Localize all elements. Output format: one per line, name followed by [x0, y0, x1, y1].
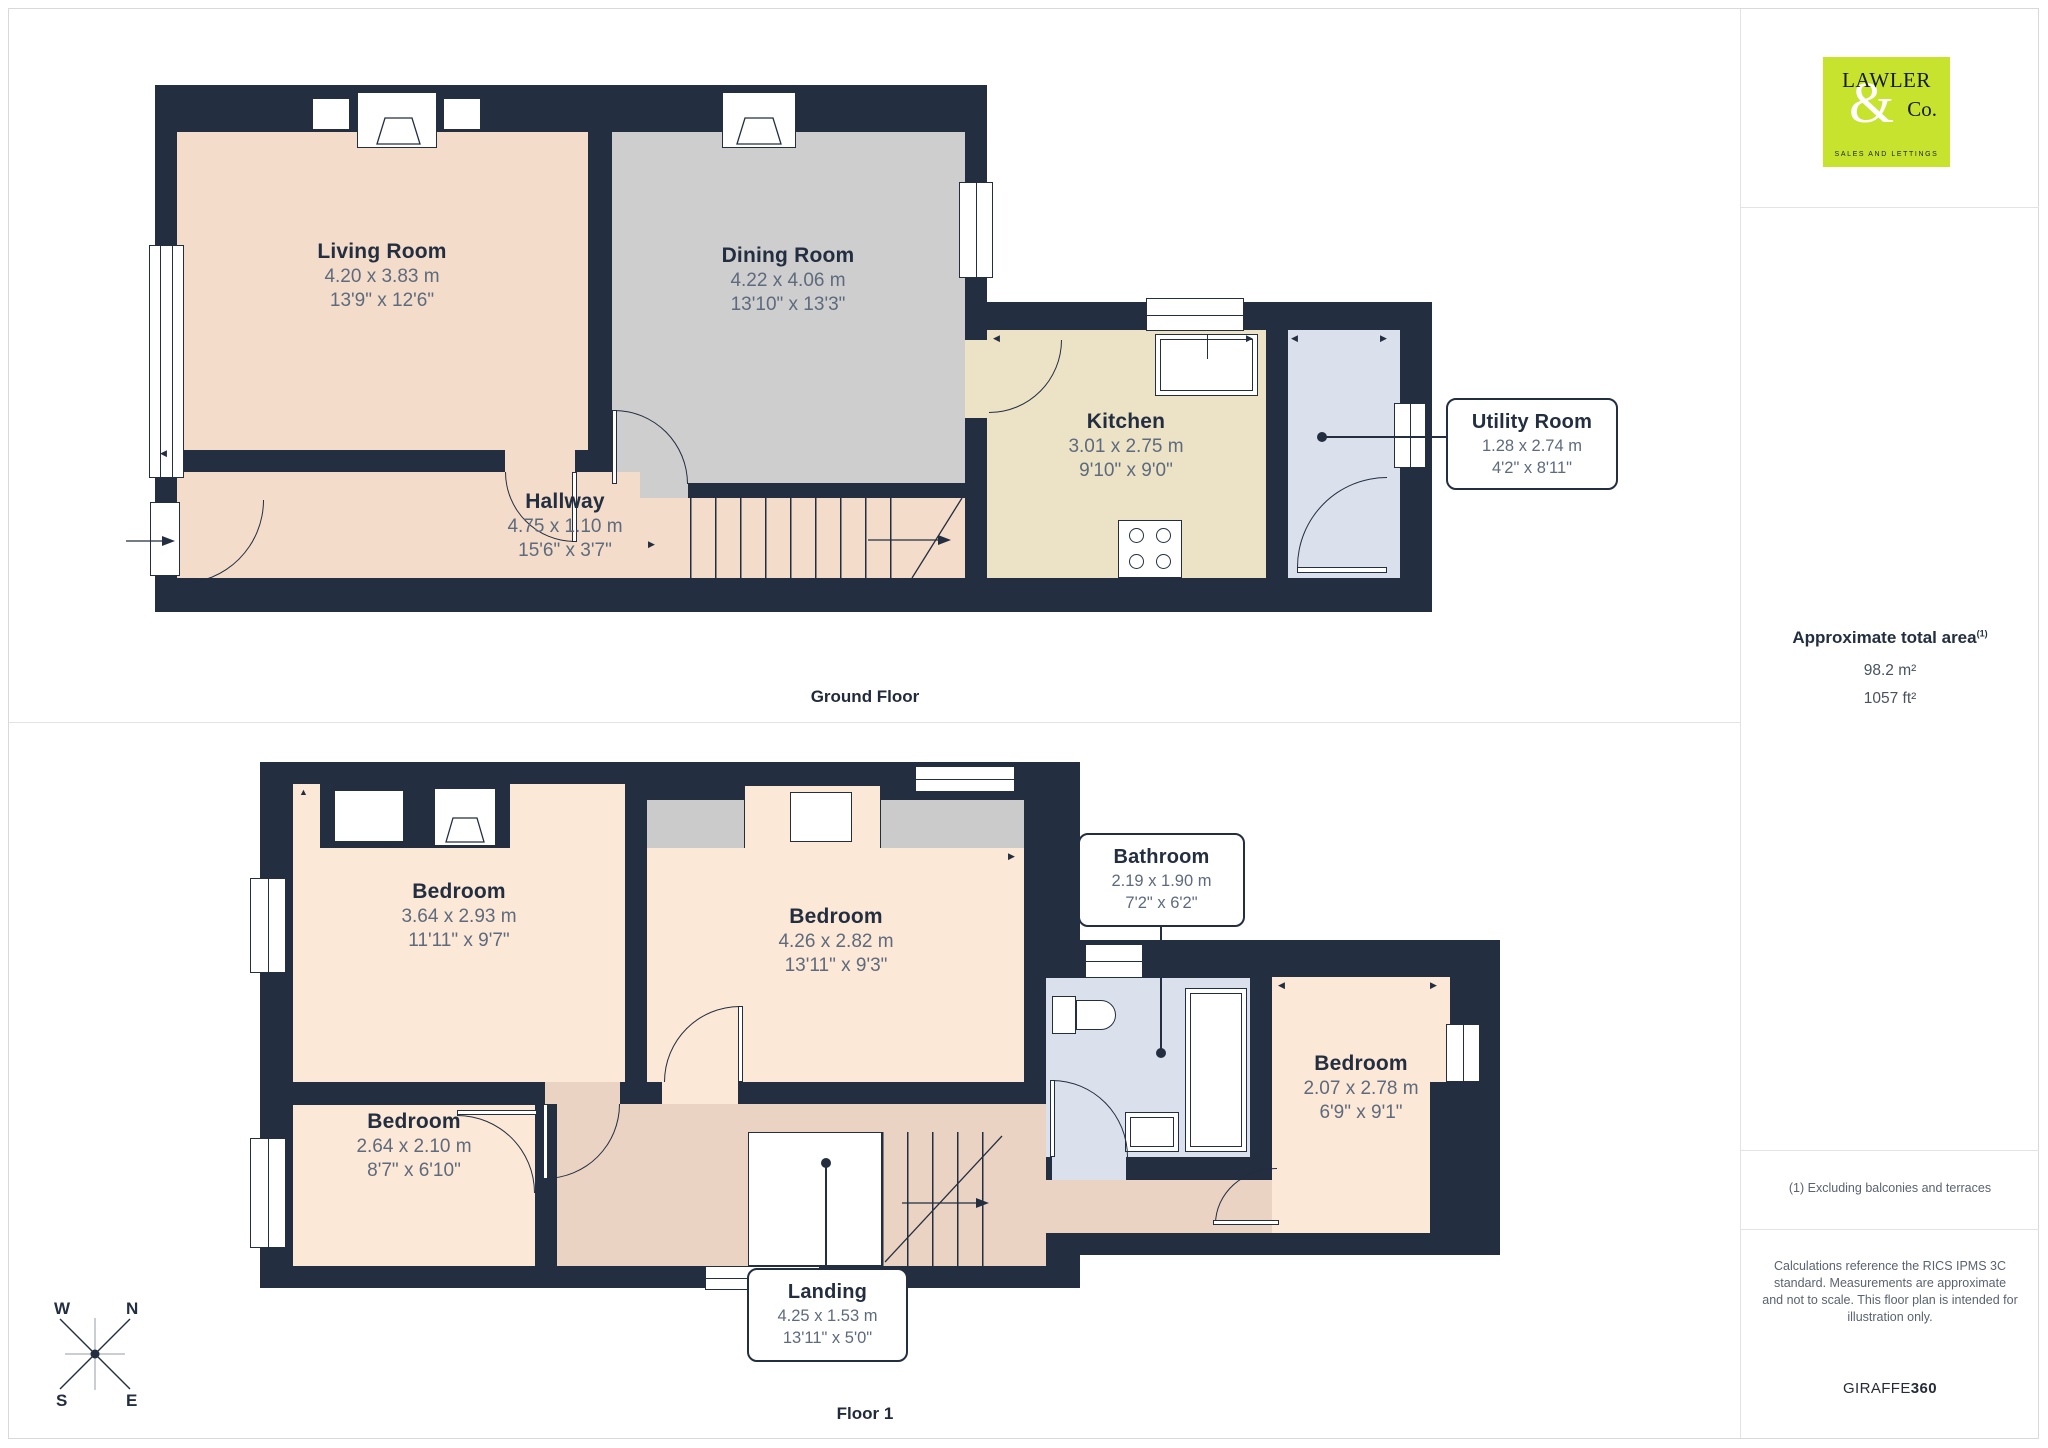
window-icon	[915, 766, 1015, 792]
room-name: Landing	[749, 1279, 906, 1306]
door-leaf	[1050, 1080, 1055, 1157]
measure-arrow-icon: ▲	[299, 788, 308, 797]
kitchen-label: Kitchen 3.01 x 2.75 m 9'10" x 9'0"	[1001, 408, 1251, 483]
leader-dot	[1317, 432, 1327, 442]
room-name: Bathroom	[1080, 844, 1243, 871]
compass-icon: W N S E	[40, 1296, 150, 1408]
bedroom-4-label: Bedroom 2.07 x 2.78 m 6'9" x 9'1"	[1236, 1050, 1486, 1125]
kitchen-sink-icon	[1155, 334, 1258, 396]
room-size-imperial: 13'11" x 9'3"	[711, 954, 961, 978]
room-name: Kitchen	[1001, 408, 1251, 435]
ground-floor-title: Ground Floor	[740, 687, 990, 707]
measure-arrow-icon: ◀	[160, 449, 167, 458]
logo-co: Co.	[1907, 97, 1937, 122]
room-size-imperial: 13'11" x 5'0"	[749, 1328, 906, 1350]
room-size-metric: 4.25 x 1.53 m	[749, 1306, 906, 1328]
floors-divider	[9, 722, 1740, 723]
room-size-metric: 2.64 x 2.10 m	[289, 1135, 539, 1159]
compass-north-label: N	[126, 1299, 138, 1318]
leader-dot	[1156, 1048, 1166, 1058]
eaves-storage-area	[880, 800, 1024, 848]
room-name: Bedroom	[711, 903, 961, 930]
landing-callout: Landing 4.25 x 1.53 m 13'11" x 5'0"	[747, 1268, 908, 1362]
door-opening	[505, 450, 575, 472]
door-leaf	[612, 410, 617, 484]
logo-tagline: SALES AND LETTINGS	[1823, 151, 1950, 158]
toilet-icon	[1052, 996, 1076, 1034]
stair-void	[748, 1132, 882, 1266]
measure-arrow-icon: ◀	[1278, 981, 1285, 990]
window-icon	[959, 182, 993, 278]
front-door-opening	[150, 502, 180, 576]
fireplace-icon	[434, 788, 496, 846]
room-name: Bedroom	[1236, 1050, 1486, 1077]
sidebar-section-divider-3	[1741, 1229, 2039, 1230]
compass-west-label: W	[54, 1299, 71, 1318]
total-area-imperial: 1057 ft²	[1745, 690, 2035, 708]
door-opening	[662, 1082, 738, 1104]
leader-line	[825, 1163, 827, 1268]
total-area-metric: 98.2 m²	[1745, 662, 2035, 680]
credit-brand: GIRAFFE	[1843, 1380, 1911, 1397]
bathroom-callout: Bathroom 2.19 x 1.90 m 7'2" x 6'2"	[1078, 833, 1245, 927]
alcove-niche	[790, 792, 852, 842]
logo-name: LAWLER	[1823, 68, 1950, 93]
room-name: Living Room	[257, 238, 507, 265]
room-size-metric: 4.20 x 3.83 m	[257, 265, 507, 289]
bedroom-3-label: Bedroom 2.64 x 2.10 m 8'7" x 6'10"	[289, 1108, 539, 1183]
alcove-niche	[443, 98, 481, 130]
window-icon	[1146, 298, 1244, 331]
measure-arrow-icon: ◀	[993, 334, 1000, 343]
window-icon	[250, 1138, 286, 1248]
total-area-title-text: Approximate total area	[1792, 628, 1976, 647]
room-name: Dining Room	[663, 242, 913, 269]
measure-arrow-icon: ▶	[1380, 334, 1387, 343]
door-opening	[965, 340, 989, 418]
living-room-label: Living Room 4.20 x 3.83 m 13'9" x 12'6"	[257, 238, 507, 313]
room-size-metric: 3.01 x 2.75 m	[1001, 435, 1251, 459]
room-size-metric: 2.07 x 2.78 m	[1236, 1077, 1486, 1101]
dining-room-label: Dining Room 4.22 x 4.06 m 13'10" x 13'3"	[663, 242, 913, 317]
leader-line	[1160, 927, 1162, 1052]
room-size-metric: 4.26 x 2.82 m	[711, 930, 961, 954]
room-size-imperial: 15'6" x 3'7"	[440, 539, 690, 563]
compass-east-label: E	[126, 1391, 137, 1408]
window-icon	[149, 245, 184, 478]
leader-line	[1322, 436, 1446, 438]
room-size-metric: 1.28 x 2.74 m	[1448, 436, 1616, 458]
door-leaf	[1297, 567, 1387, 573]
measure-arrow-icon: ▶	[1008, 852, 1015, 861]
fireplace-icon	[357, 92, 437, 148]
room-size-metric: 3.64 x 2.93 m	[334, 905, 584, 929]
measure-arrow-icon: ▶	[1246, 334, 1253, 343]
giraffe360-credit: GIRAFFE360	[1745, 1380, 2035, 1397]
room-size-imperial: 7'2" x 6'2"	[1080, 893, 1243, 915]
room-name: Bedroom	[289, 1108, 539, 1135]
compass-south-label: S	[56, 1391, 67, 1408]
door-leaf	[738, 1006, 743, 1082]
door-leaf	[543, 1104, 548, 1179]
utility-room-callout: Utility Room 1.28 x 2.74 m 4'2" x 8'11"	[1446, 398, 1618, 490]
hob-icon	[1118, 520, 1182, 578]
measure-arrow-icon: ▲	[488, 121, 497, 130]
floorplan-page: Utility Room 1.28 x 2.74 m 4'2" x 8'11" …	[0, 0, 2048, 1448]
room-size-imperial: 13'10" x 13'3"	[663, 293, 913, 317]
eaves-storage-area	[647, 800, 745, 848]
alcove-niche	[334, 790, 404, 842]
disclaimer: Calculations reference the RICS IPMS 3C …	[1762, 1258, 2018, 1326]
bathroom-sink-icon	[1125, 1112, 1179, 1152]
room-name: Hallway	[440, 488, 690, 515]
room-size-imperial: 8'7" x 6'10"	[289, 1159, 539, 1183]
total-area-note-ref: (1)	[1977, 628, 1988, 638]
measure-arrow-icon: ▶	[1430, 981, 1437, 990]
total-area-title: Approximate total area(1)	[1745, 628, 2035, 648]
alcove-niche	[312, 98, 350, 130]
measure-arrow-icon: ◀	[1291, 334, 1298, 343]
floor-1-title: Floor 1	[740, 1404, 990, 1424]
window-icon	[250, 878, 286, 973]
room-name: Utility Room	[1448, 409, 1616, 436]
bedroom-1-label: Bedroom 3.64 x 2.93 m 11'11" x 9'7"	[334, 878, 584, 953]
hallway-label: Hallway 4.75 x 1.10 m 15'6" x 3'7"	[440, 488, 690, 563]
footnote: (1) Excluding balconies and terraces	[1745, 1180, 2035, 1197]
room-size-imperial: 9'10" x 9'0"	[1001, 459, 1251, 483]
toilet-icon	[1076, 1000, 1116, 1030]
room-size-imperial: 6'9" x 9'1"	[1236, 1101, 1486, 1125]
door-opening	[545, 1082, 620, 1104]
room-size-metric: 2.19 x 1.90 m	[1080, 871, 1243, 893]
staircase	[690, 498, 912, 578]
room-size-imperial: 4'2" x 8'11"	[1448, 458, 1616, 480]
room-size-metric: 4.22 x 4.06 m	[663, 269, 913, 293]
room-size-imperial: 13'9" x 12'6"	[257, 289, 507, 313]
bedroom-2-label: Bedroom 4.26 x 2.82 m 13'11" x 9'3"	[711, 903, 961, 978]
sidebar-section-divider-2	[1741, 1150, 2039, 1151]
staircase	[882, 1132, 1006, 1266]
room-name: Bedroom	[334, 878, 584, 905]
door-leaf	[1213, 1220, 1279, 1225]
room-size-metric: 4.75 x 1.10 m	[440, 515, 690, 539]
window-icon	[1085, 944, 1143, 978]
room-size-imperial: 11'11" x 9'7"	[334, 929, 584, 953]
sidebar-section-divider-1	[1741, 207, 2039, 208]
credit-suffix: 360	[1911, 1380, 1937, 1397]
leader-dot	[821, 1158, 831, 1168]
sidebar-divider	[1740, 9, 1741, 1438]
door-opening	[1052, 1157, 1126, 1180]
agency-logo: & LAWLER Co. SALES AND LETTINGS	[1823, 57, 1950, 167]
fireplace-icon	[722, 92, 796, 148]
